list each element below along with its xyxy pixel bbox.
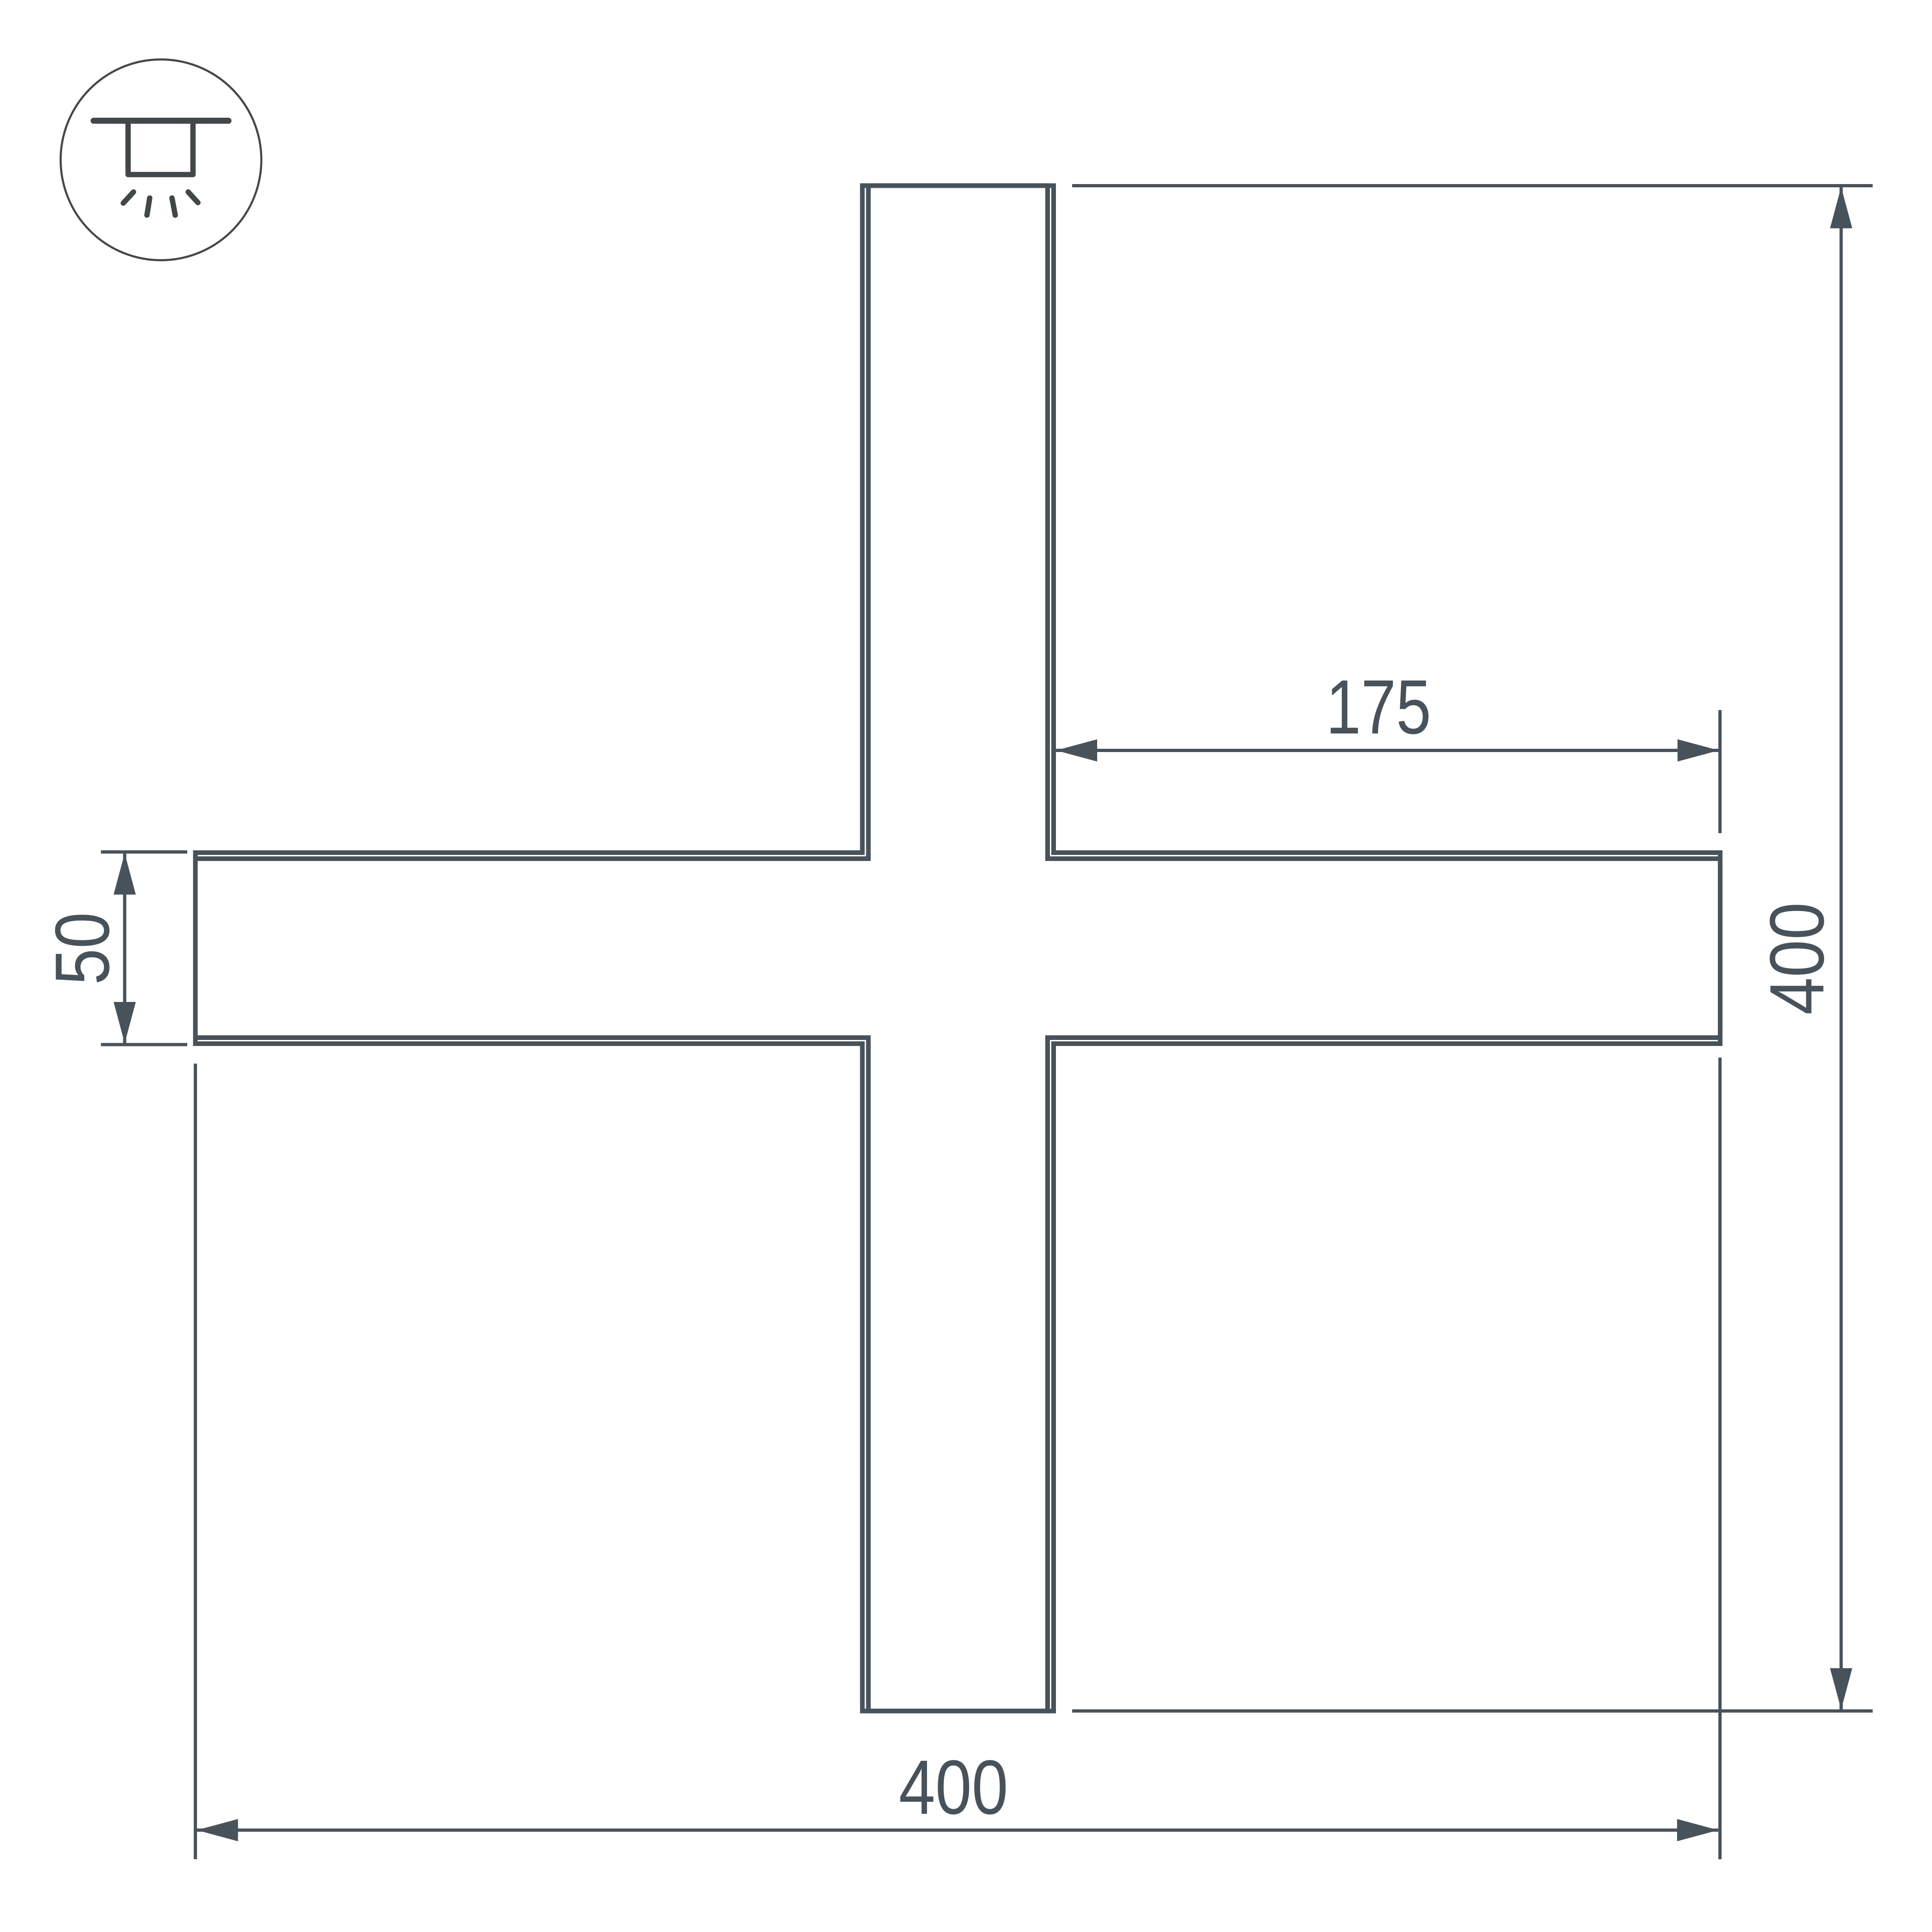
svg-text:50: 50 [40,912,126,985]
svg-text:175: 175 [1326,664,1431,750]
svg-text:400: 400 [899,1745,1008,1830]
svg-text:400: 400 [1754,902,1840,1015]
